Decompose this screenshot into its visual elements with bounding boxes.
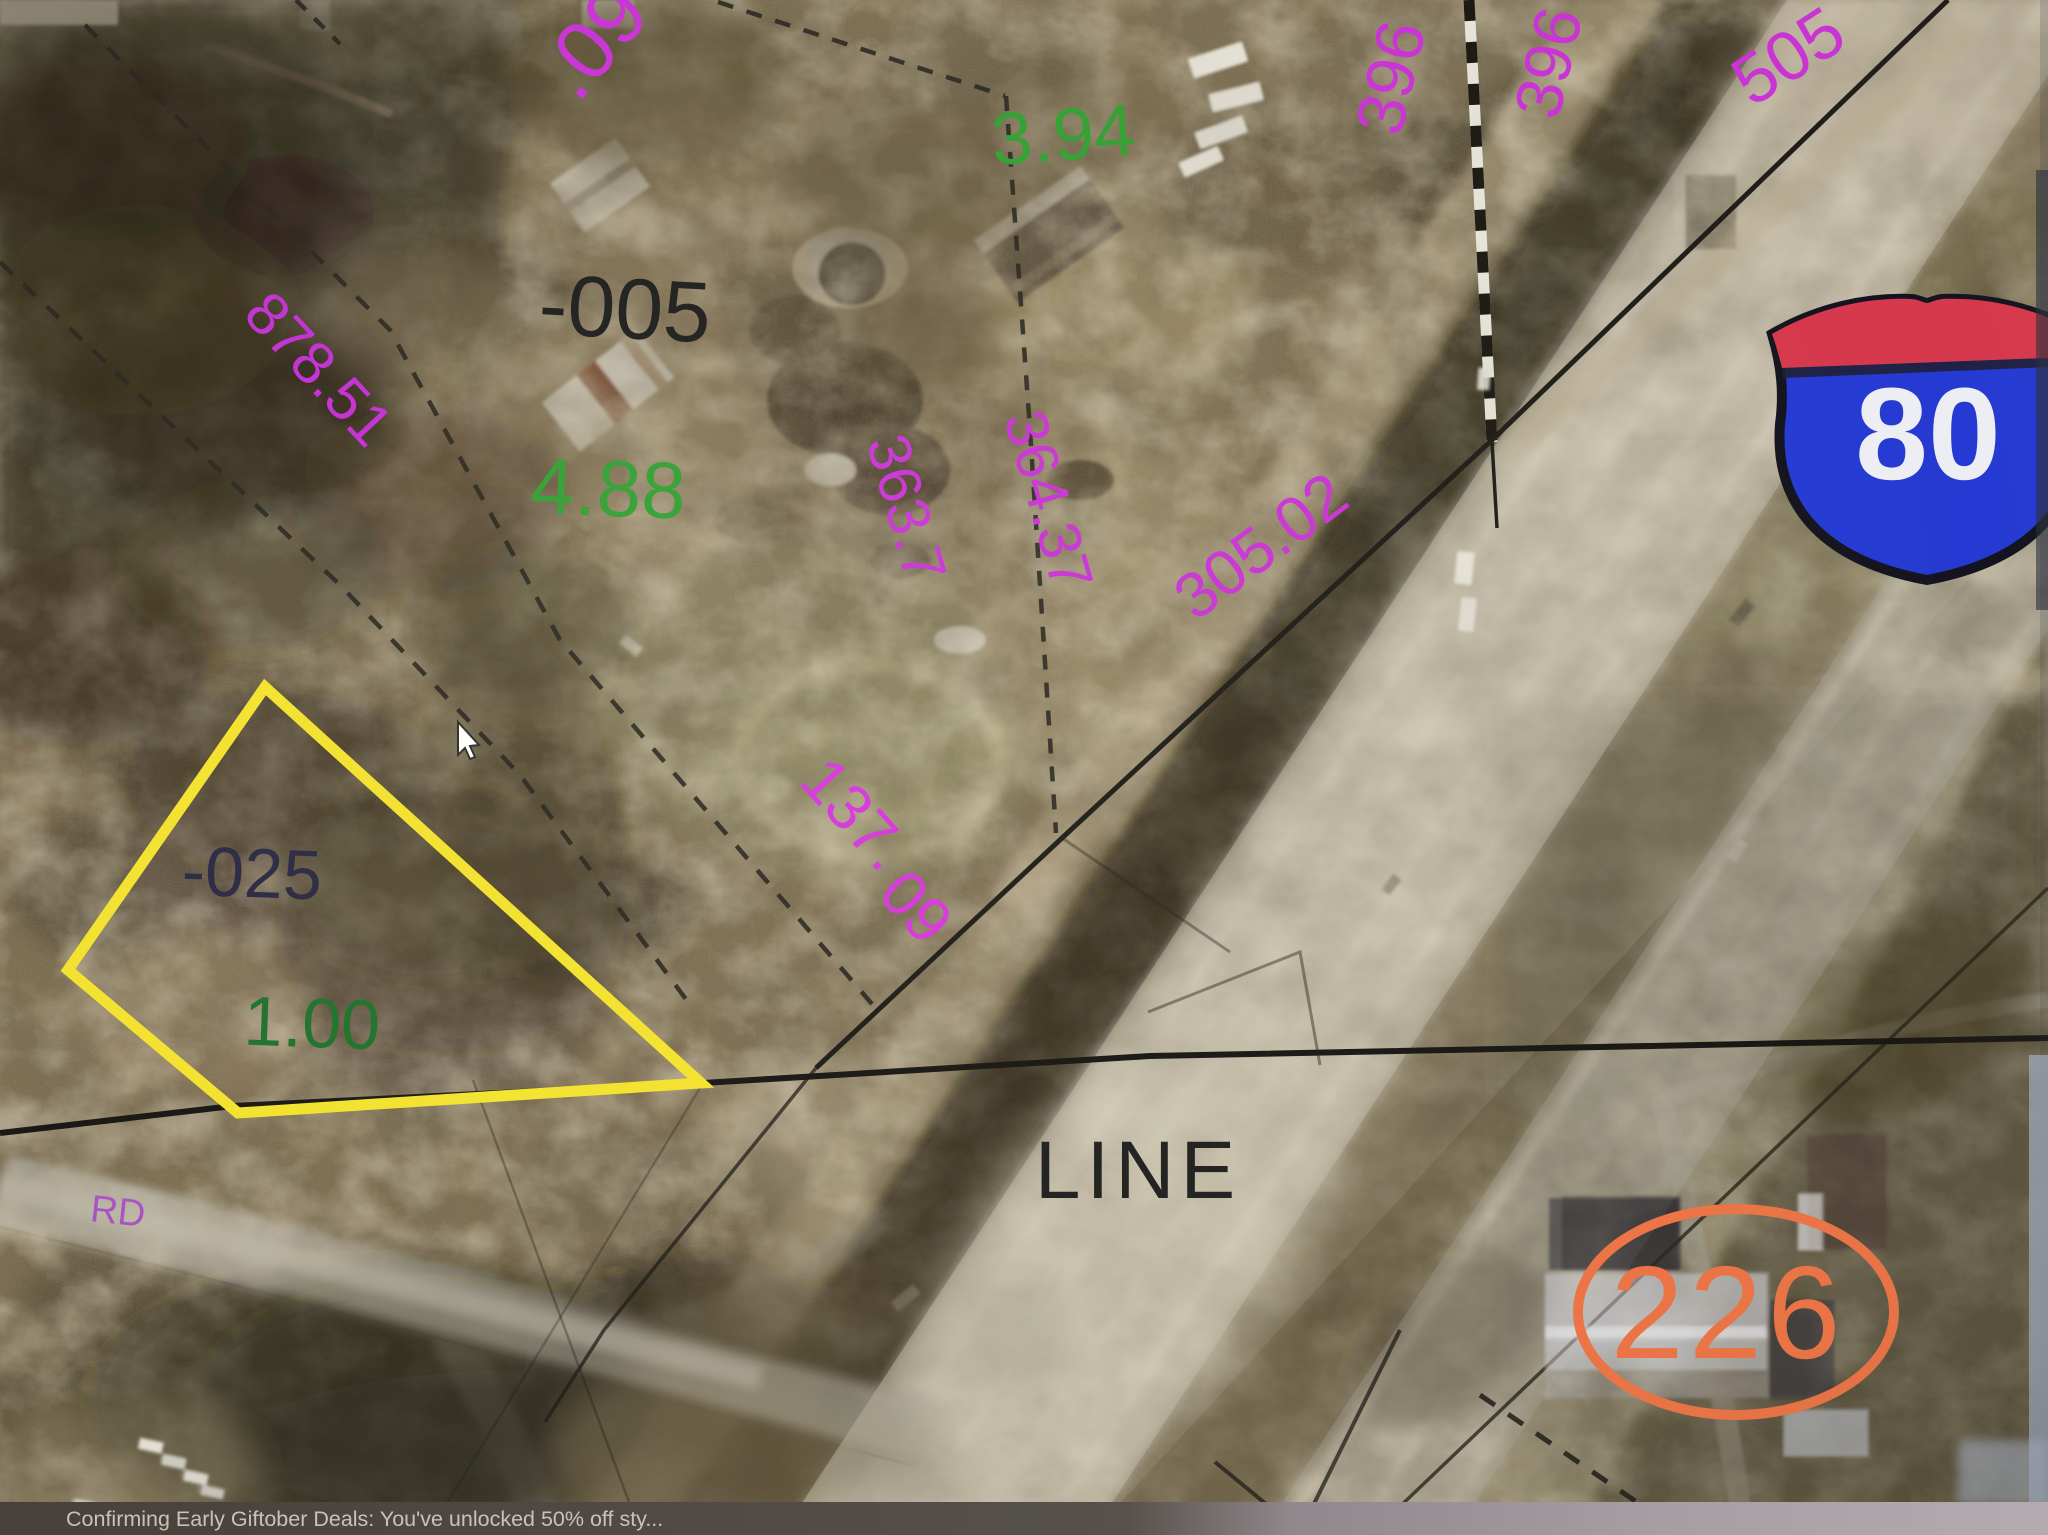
- svg-text:Confirming Early Giftober Deal: Confirming Early Giftober Deals: You've …: [66, 1507, 663, 1531]
